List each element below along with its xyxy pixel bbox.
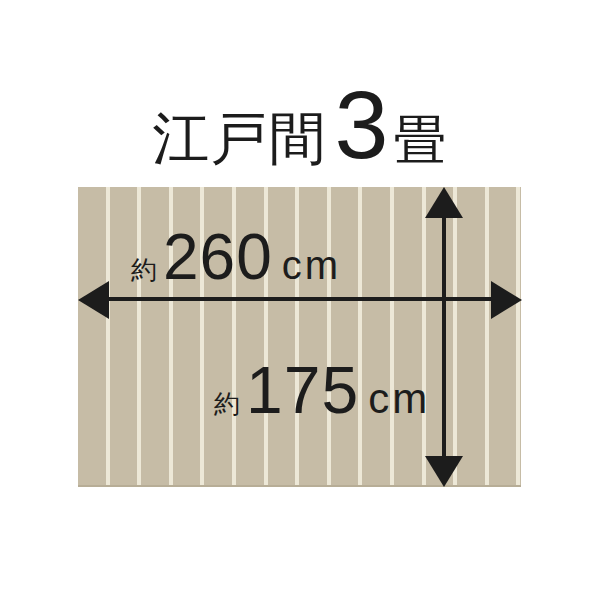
- height-dimension-label: 約 175 cm: [214, 357, 430, 423]
- width-value: 260: [163, 225, 273, 289]
- page-title: 江戸間 3 畳: [0, 76, 600, 173]
- width-approx-prefix: 約: [131, 257, 157, 283]
- height-arrow-shaft: [442, 212, 446, 462]
- title-mat-count: 3: [335, 76, 389, 173]
- height-approx-prefix: 約: [214, 391, 240, 417]
- height-unit: cm: [368, 378, 430, 420]
- width-dimension-label: 約 260 cm: [131, 225, 341, 289]
- width-arrow-left-head: [78, 281, 109, 319]
- height-arrow-bottom-head: [425, 456, 463, 487]
- width-unit: cm: [282, 245, 341, 285]
- width-arrow-right-head: [491, 281, 522, 319]
- product-dimension-diagram: 江戸間 3 畳 約 260 cm 約 175 cm: [0, 0, 600, 600]
- height-value: 175: [246, 357, 359, 423]
- height-arrow-top-head: [425, 187, 463, 218]
- title-mat-unit: 畳: [393, 113, 447, 166]
- title-size-name: 江戸間: [153, 110, 327, 167]
